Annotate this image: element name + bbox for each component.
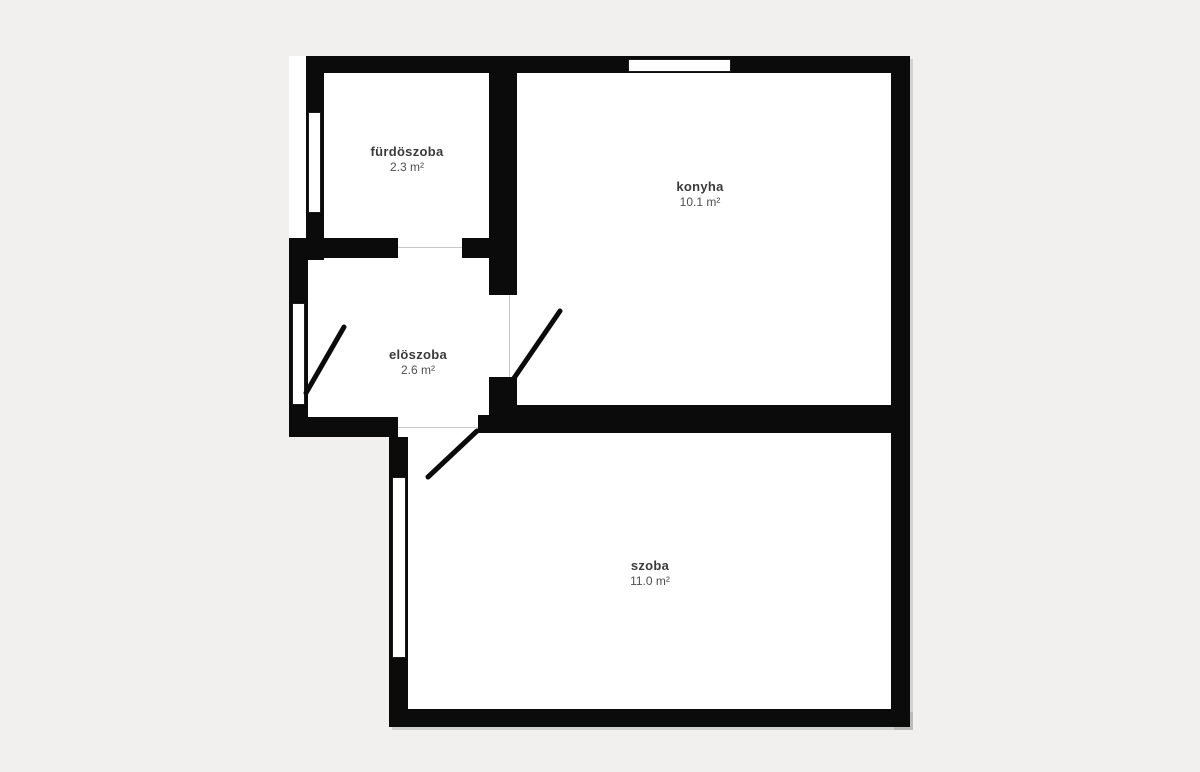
door-opening-line-konyha	[509, 295, 510, 377]
entrance-door-opening	[292, 303, 305, 405]
room-label-szoba: szoba 11.0 m²	[630, 558, 670, 590]
wall-top	[306, 56, 910, 73]
room-area-eloszoba: 2.6 m²	[389, 362, 447, 379]
wall-konyha-bottom	[489, 405, 910, 433]
door-opening-line-szoba	[398, 427, 478, 428]
window-szoba	[392, 477, 406, 658]
wall-right	[891, 56, 910, 727]
wall-eloszoba-bottom	[289, 417, 398, 437]
window-konyha-top	[628, 59, 731, 72]
room-label-konyha: konyha 10.1 m²	[676, 179, 723, 211]
floor-plan: fürdöszoba 2.3 m² konyha 10.1 m² elöszob…	[0, 0, 1200, 772]
room-area-furdoszoba: 2.3 m²	[370, 159, 443, 176]
room-area-szoba: 11.0 m²	[630, 573, 670, 590]
room-label-eloszoba: elöszoba 2.6 m²	[389, 347, 447, 379]
window-furdoszoba	[308, 112, 321, 213]
room-label-furdoszoba: fürdöszoba 2.3 m²	[370, 144, 443, 176]
wall-szoba-door-jamb	[478, 415, 492, 433]
wall-bottom	[389, 709, 910, 727]
room-name-konyha: konyha	[676, 179, 723, 194]
door-opening-line-furdoszoba	[398, 247, 462, 248]
wall-konyha-left-upper	[489, 56, 517, 295]
room-name-szoba: szoba	[630, 558, 670, 573]
room-name-furdoszoba: fürdöszoba	[370, 144, 443, 159]
wall-furdoszoba-bottom-left-segment	[289, 238, 398, 258]
room-name-eloszoba: elöszoba	[389, 347, 447, 362]
room-area-konyha: 10.1 m²	[676, 194, 723, 211]
